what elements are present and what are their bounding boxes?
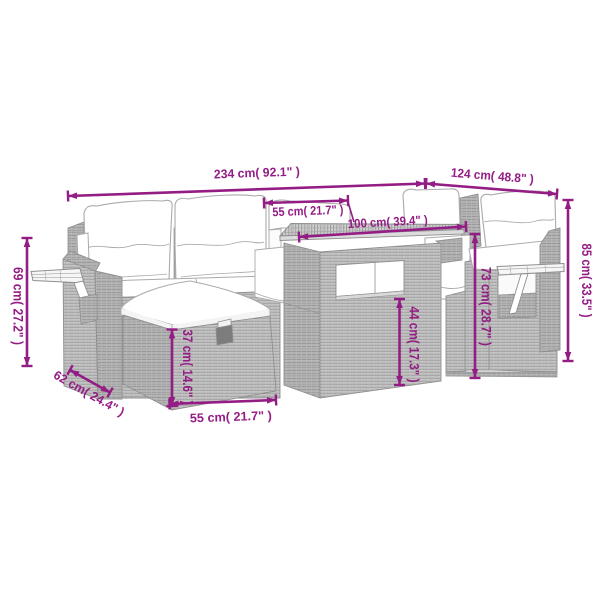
svg-text:85 cm( 33.5" ): 85 cm( 33.5" ) xyxy=(579,244,595,318)
svg-text:73 cm( 28.7" ): 73 cm( 28.7" ) xyxy=(479,267,495,346)
svg-text:44 cm( 17.3" ): 44 cm( 17.3" ) xyxy=(407,307,423,383)
svg-text:37 cm( 14.6" ): 37 cm( 14.6" ) xyxy=(180,330,196,405)
svg-text:55 cm( 21.7" ): 55 cm( 21.7" ) xyxy=(272,203,343,219)
svg-text:234 cm( 92.1" ): 234 cm( 92.1" ) xyxy=(214,165,300,182)
svg-text:55 cm( 21.7" ): 55 cm( 21.7" ) xyxy=(190,409,272,426)
svg-text:69 cm( 27.2" ): 69 cm( 27.2" ) xyxy=(11,267,27,345)
